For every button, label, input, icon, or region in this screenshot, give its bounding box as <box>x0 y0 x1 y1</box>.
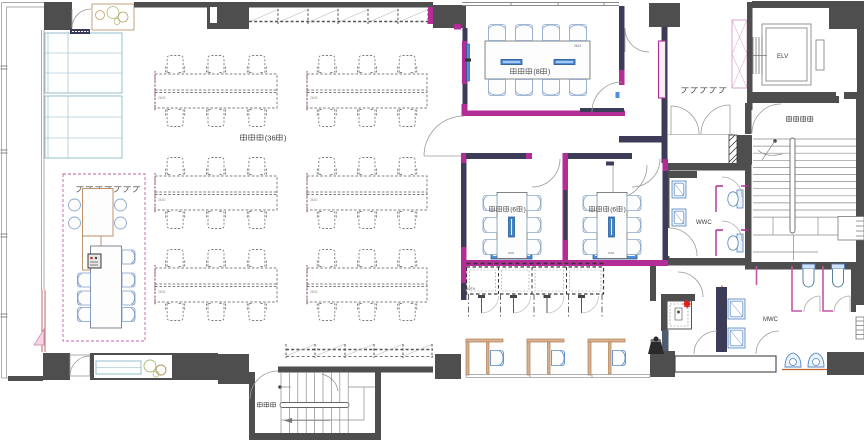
svg-text:WWC: WWC <box>696 220 712 226</box>
svg-text:2602: 2602 <box>310 96 318 100</box>
svg-text:): ) <box>548 68 550 76</box>
svg-text:ELV: ELV <box>777 53 789 60</box>
svg-text:MWC: MWC <box>763 317 779 323</box>
svg-text:2613: 2613 <box>574 44 581 48</box>
svg-text:): ) <box>624 207 626 214</box>
svg-text:2602: 2602 <box>158 198 166 202</box>
svg-text:2602: 2602 <box>158 96 166 100</box>
svg-text:(8: (8 <box>533 68 539 76</box>
svg-text:(6: (6 <box>610 207 616 214</box>
svg-text:(36: (36 <box>265 133 276 142</box>
svg-text:): ) <box>524 207 526 214</box>
svg-text:BOOTH: BOOTH <box>463 287 476 291</box>
svg-text:(6: (6 <box>510 207 516 214</box>
svg-text:2602: 2602 <box>310 290 318 294</box>
svg-text:2602: 2602 <box>158 290 166 294</box>
svg-text:2602: 2602 <box>310 198 318 202</box>
svg-text:W04: W04 <box>608 251 615 255</box>
svg-text:W04: W04 <box>508 251 515 255</box>
